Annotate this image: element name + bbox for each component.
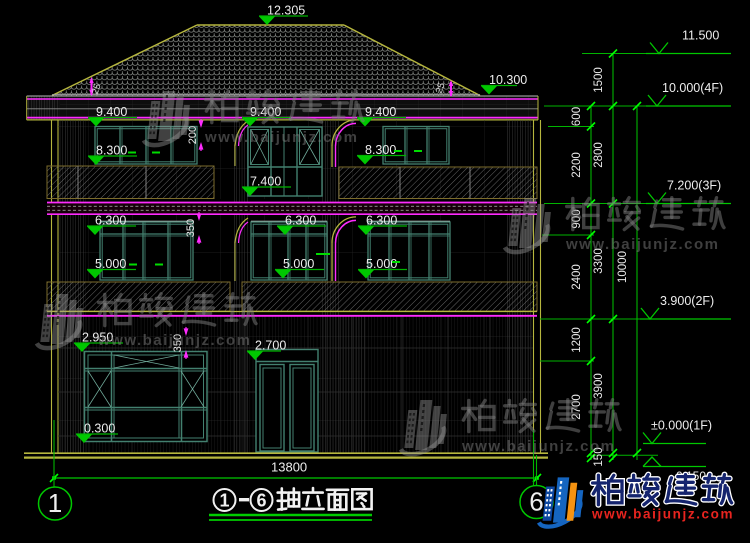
svg-text:6: 6 [256,491,266,511]
svg-text:7.200(3F): 7.200(3F) [667,179,721,193]
svg-text:www.baijunjz.com: www.baijunjz.com [461,438,615,455]
svg-text:1500: 1500 [593,67,605,93]
svg-text:www.baijunjz.com: www.baijunjz.com [204,129,358,146]
svg-text:10000: 10000 [617,251,629,283]
svg-text:2800: 2800 [593,142,605,168]
svg-text:3900: 3900 [593,373,605,399]
svg-text:200: 200 [187,126,199,144]
svg-text:1: 1 [48,488,62,518]
svg-text:2400: 2400 [571,264,583,290]
svg-text:10.000(4F): 10.000(4F) [662,81,723,95]
svg-text:www.baijunjz.com: www.baijunjz.com [565,236,719,253]
svg-text:www.baijunjz.com: www.baijunjz.com [97,332,251,349]
svg-text:600: 600 [571,107,583,126]
svg-text:www.baijunjz.com: www.baijunjz.com [591,507,734,522]
svg-text:2200: 2200 [571,152,583,178]
svg-text:11.500: 11.500 [682,29,719,43]
svg-text:1: 1 [219,491,229,511]
svg-text:350: 350 [185,219,197,237]
svg-text:6: 6 [529,487,543,517]
svg-text:1200: 1200 [571,327,583,353]
svg-text:13800: 13800 [271,460,307,475]
svg-text:3.900(2F): 3.900(2F) [660,294,714,308]
svg-text:±0.000(1F): ±0.000(1F) [651,419,712,433]
